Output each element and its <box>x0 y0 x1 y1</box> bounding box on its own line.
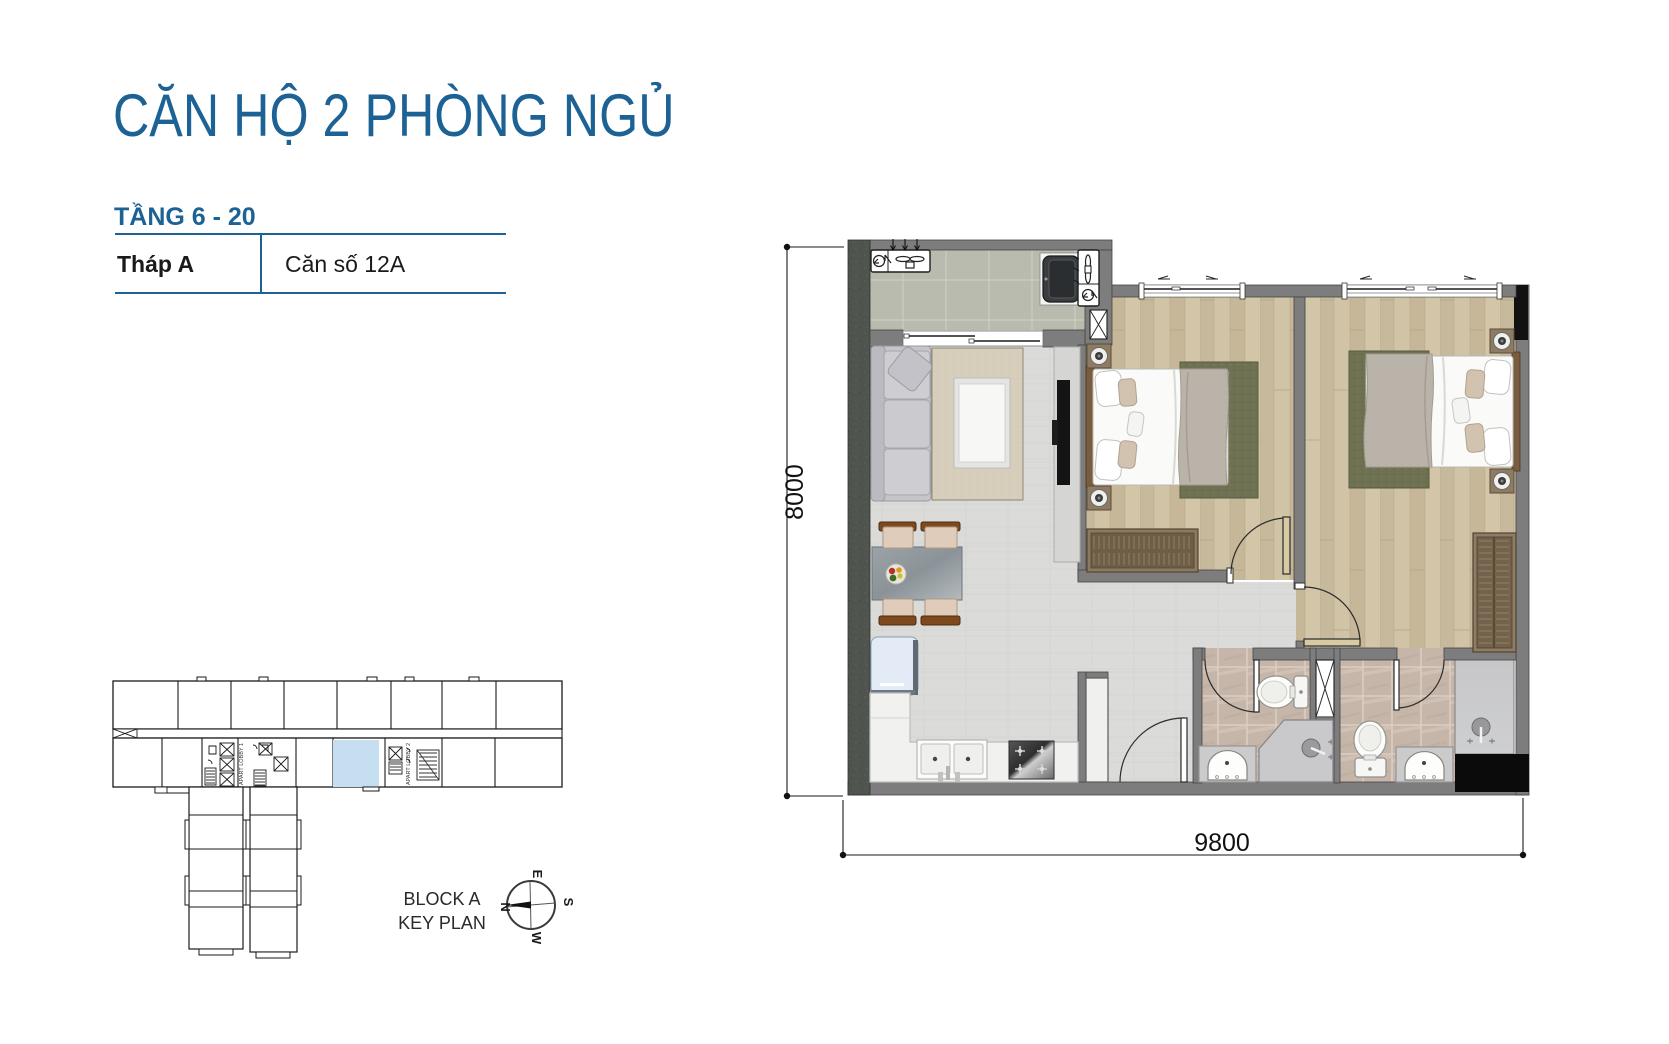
svg-text:BLOCK A: BLOCK A <box>403 889 480 909</box>
svg-text:E: E <box>530 870 545 879</box>
svg-text:8000: 8000 <box>781 464 809 520</box>
svg-text:APART LOBBY 1: APART LOBBY 1 <box>239 743 245 785</box>
svg-text:APART LOBBY 2: APART LOBBY 2 <box>406 743 412 785</box>
svg-text:9800: 9800 <box>1194 829 1250 857</box>
svg-text:KEY PLAN: KEY PLAN <box>398 913 486 933</box>
svg-text:N: N <box>498 902 513 911</box>
svg-text:W: W <box>529 932 544 945</box>
svg-text:S: S <box>561 898 576 907</box>
